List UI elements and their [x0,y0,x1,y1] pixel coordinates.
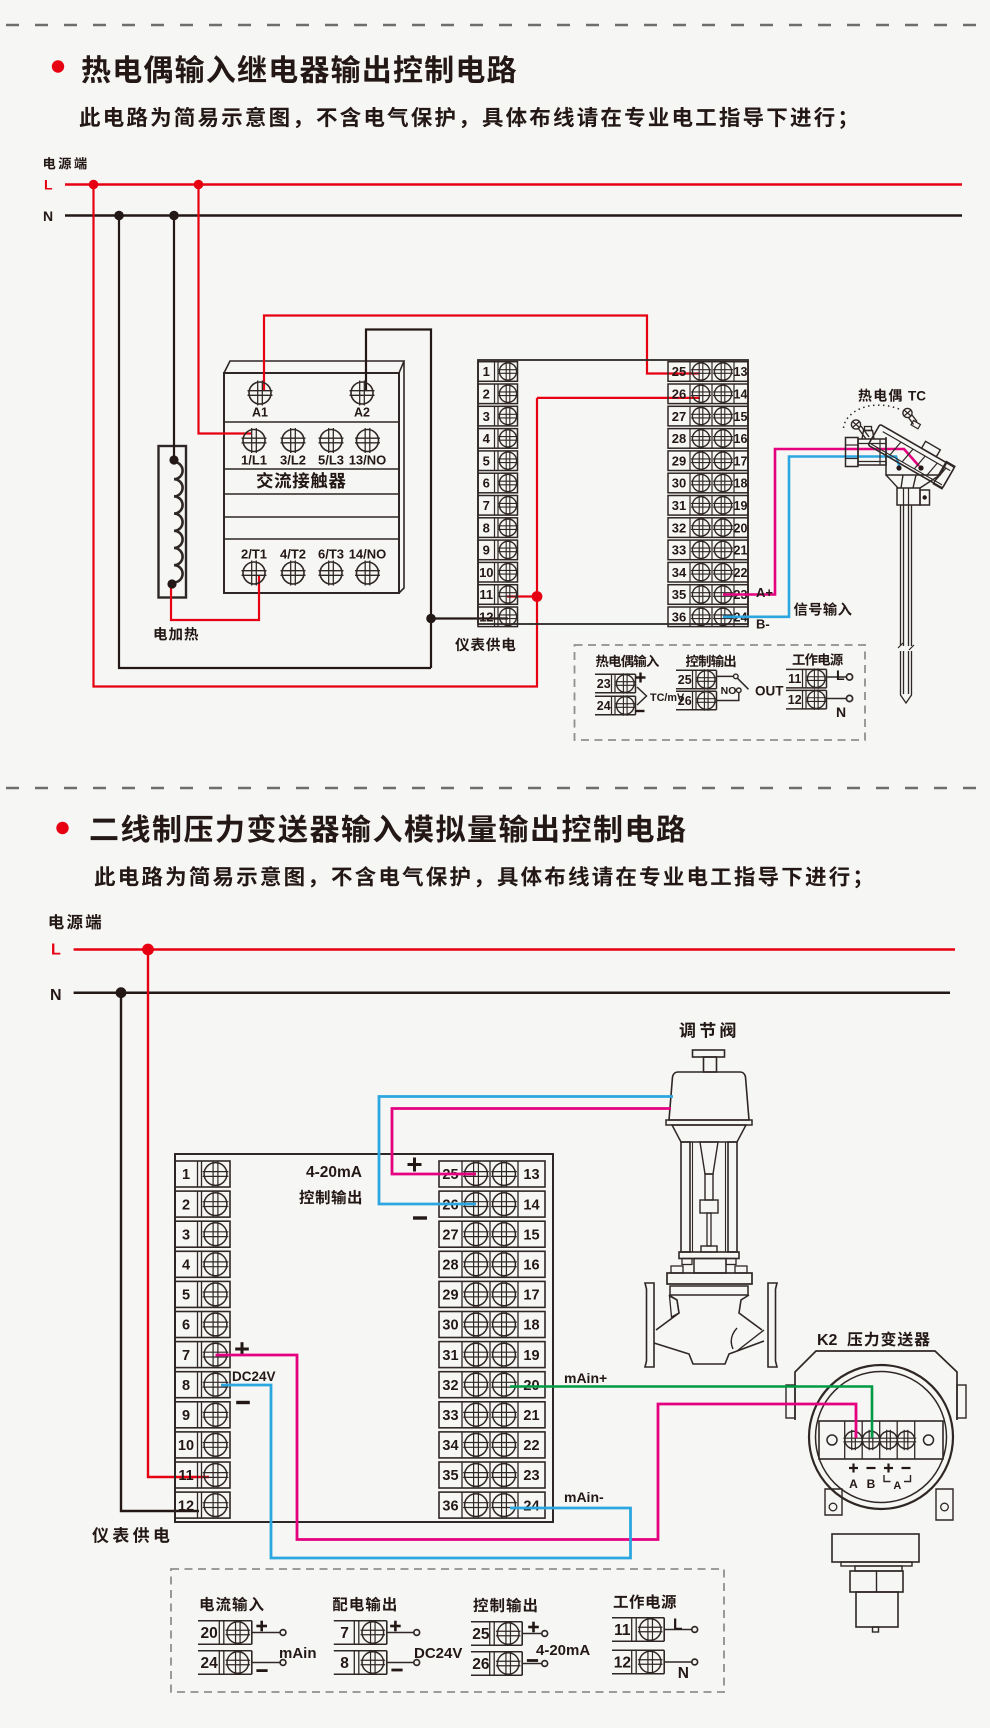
svg-text:4/T2: 4/T2 [280,547,306,562]
svg-text:A1: A1 [252,406,268,420]
svg-text:10: 10 [178,1438,194,1454]
svg-text:11: 11 [178,1468,193,1484]
svg-text:33: 33 [442,1408,458,1424]
svg-text:24: 24 [597,699,611,713]
svg-text:12: 12 [479,610,493,625]
svg-text:18: 18 [734,477,748,491]
svg-text:1: 1 [483,364,490,379]
svg-text:8: 8 [340,1655,349,1672]
svg-text:24: 24 [201,1655,219,1672]
svg-text:26: 26 [472,1656,490,1673]
svg-text:29: 29 [672,453,686,468]
svg-text:L: L [51,942,61,959]
svg-text:32: 32 [672,520,686,535]
svg-text:1: 1 [182,1167,190,1183]
svg-text:20: 20 [734,521,748,535]
svg-text:13: 13 [523,1167,539,1183]
svg-text:24: 24 [523,1498,539,1514]
svg-text:K2: K2 [817,1332,838,1349]
svg-text:3: 3 [182,1227,190,1243]
svg-text:26: 26 [672,387,686,402]
svg-text:17: 17 [523,1288,539,1304]
svg-text:N: N [836,704,846,720]
svg-text:4: 4 [483,431,491,446]
svg-text:9: 9 [182,1408,190,1424]
svg-text:21: 21 [734,544,748,558]
svg-text:22: 22 [734,566,748,580]
svg-text:mAin-: mAin- [564,1489,604,1505]
svg-text:16: 16 [523,1258,539,1274]
svg-text:N: N [43,208,53,224]
svg-text:6: 6 [483,476,490,491]
svg-text:20: 20 [201,1625,218,1642]
svg-text:16: 16 [734,432,748,446]
svg-text:34: 34 [672,565,687,580]
svg-text:17: 17 [734,454,748,468]
svg-text:13: 13 [734,365,748,379]
svg-text:6: 6 [182,1318,190,1334]
svg-text:30: 30 [672,476,686,491]
svg-text:27: 27 [442,1227,458,1243]
svg-text:7: 7 [182,1348,190,1364]
svg-text:mAin: mAin [279,1645,317,1662]
svg-text:14: 14 [523,1197,539,1213]
svg-text:32: 32 [442,1378,458,1394]
svg-text:OUT: OUT [755,684,784,699]
svg-text:L: L [673,1617,682,1634]
svg-text:36: 36 [442,1498,458,1514]
svg-text:14/NO: 14/NO [349,547,387,562]
svg-text:9: 9 [483,543,490,558]
svg-text:25: 25 [672,364,686,379]
svg-text:5/L3: 5/L3 [318,453,344,468]
svg-text:34: 34 [442,1438,458,1454]
svg-text:L: L [836,667,845,683]
svg-text:2/T1: 2/T1 [241,547,267,562]
svg-text:2: 2 [182,1197,190,1213]
svg-text:2: 2 [483,387,490,402]
svg-text:N: N [678,1665,689,1682]
svg-text:B-: B- [756,617,770,632]
svg-text:3: 3 [483,409,490,424]
svg-text:A+: A+ [756,585,773,600]
svg-text:12: 12 [614,1655,631,1672]
svg-text:4-20mA: 4-20mA [536,1642,590,1659]
svg-text:29: 29 [442,1288,458,1304]
svg-text:18: 18 [523,1318,539,1334]
svg-text:A: A [849,1477,858,1491]
svg-text:NO: NO [721,685,737,697]
svg-text:4: 4 [182,1258,190,1274]
svg-text:35: 35 [442,1468,458,1484]
svg-text:7: 7 [483,498,490,513]
svg-text:28: 28 [672,431,686,446]
svg-text:N: N [50,987,62,1004]
svg-text:19: 19 [734,499,748,513]
svg-text:L: L [44,177,53,193]
svg-text:14: 14 [734,388,748,402]
svg-text:5: 5 [182,1288,190,1304]
svg-text:12: 12 [178,1498,194,1514]
svg-text:21: 21 [523,1408,539,1424]
svg-text:33: 33 [672,543,686,558]
svg-text:DC24V: DC24V [232,1369,276,1384]
svg-text:A2: A2 [354,406,370,420]
svg-text:3/L2: 3/L2 [280,453,306,468]
svg-text:23: 23 [597,677,611,691]
svg-text:11: 11 [614,1622,631,1639]
svg-text:5: 5 [483,453,490,468]
svg-text:10: 10 [479,565,493,580]
svg-text:6/T3: 6/T3 [318,547,344,562]
svg-text:DC24V: DC24V [414,1645,462,1662]
svg-text:19: 19 [523,1348,539,1364]
svg-text:11: 11 [479,587,493,602]
svg-text:31: 31 [672,498,686,513]
svg-text:13/NO: 13/NO [349,453,387,468]
svg-text:4-20mA: 4-20mA [306,1164,362,1181]
svg-text:25: 25 [472,1626,490,1643]
svg-text:31: 31 [442,1348,458,1364]
svg-text:26: 26 [678,694,692,708]
svg-text:TC: TC [908,389,926,404]
svg-text:8: 8 [483,520,490,535]
svg-text:23: 23 [523,1468,539,1484]
svg-text:28: 28 [442,1258,458,1274]
svg-text:8: 8 [182,1378,190,1394]
svg-text:B: B [867,1477,876,1491]
svg-text:1/L1: 1/L1 [241,453,267,468]
svg-text:22: 22 [523,1438,539,1454]
svg-text:mAin+: mAin+ [564,1370,607,1386]
svg-text:27: 27 [672,409,686,424]
svg-text:35: 35 [672,587,686,602]
svg-text:7: 7 [340,1625,349,1642]
svg-text:15: 15 [734,410,748,424]
svg-text:15: 15 [523,1227,539,1243]
svg-text:12: 12 [788,693,802,707]
svg-text:A: A [893,1480,901,1492]
svg-text:36: 36 [672,610,686,625]
svg-text:25: 25 [678,673,692,687]
svg-text:30: 30 [442,1318,458,1334]
svg-text:11: 11 [788,672,801,686]
